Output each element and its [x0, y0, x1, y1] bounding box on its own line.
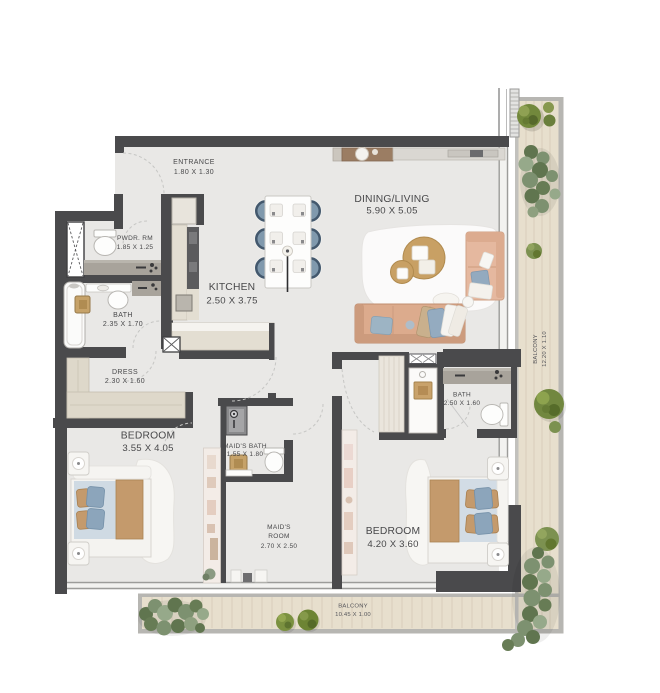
svg-text:BALCONY: BALCONY — [338, 604, 368, 610]
svg-text:2.30 X 1.60: 2.30 X 1.60 — [105, 378, 145, 385]
svg-text:4.20 X 3.60: 4.20 X 3.60 — [367, 539, 418, 550]
svg-text:DRESS: DRESS — [112, 369, 138, 376]
svg-text:2.50 X 1.60: 2.50 X 1.60 — [444, 400, 481, 407]
svg-text:DINING/LIVING: DINING/LIVING — [354, 194, 429, 205]
svg-text:MAID'S: MAID'S — [267, 524, 291, 531]
svg-text:3.55 X 4.05: 3.55 X 4.05 — [122, 443, 173, 454]
svg-text:2.70 X 2.50: 2.70 X 2.50 — [261, 543, 298, 550]
svg-text:BEDROOM: BEDROOM — [366, 526, 421, 537]
svg-text:2.35 X 1.70: 2.35 X 1.70 — [103, 321, 143, 328]
svg-text:1.55 X 1.80: 1.55 X 1.80 — [227, 451, 264, 458]
svg-text:1.85 X 1.25: 1.85 X 1.25 — [117, 244, 154, 251]
svg-text:PWDR. RM: PWDR. RM — [117, 235, 153, 242]
svg-text:5.90 X 5.05: 5.90 X 5.05 — [366, 206, 417, 217]
svg-text:1.80 X 1.30: 1.80 X 1.30 — [174, 169, 214, 176]
svg-text:MAID'S BATH: MAID'S BATH — [223, 443, 267, 450]
svg-text:2.50 X 3.75: 2.50 X 3.75 — [206, 296, 257, 307]
svg-text:ROOM: ROOM — [268, 533, 289, 540]
svg-text:BEDROOM: BEDROOM — [121, 431, 176, 442]
svg-text:BATH: BATH — [453, 392, 471, 399]
svg-text:ENTRANCE: ENTRANCE — [173, 159, 215, 166]
svg-text:BATH: BATH — [113, 312, 133, 319]
svg-text:10.45 X 1.00: 10.45 X 1.00 — [335, 612, 371, 618]
svg-text:BALCONY: BALCONY — [533, 334, 539, 364]
svg-text:12.20 X 1.10: 12.20 X 1.10 — [542, 331, 548, 367]
svg-text:KITCHEN: KITCHEN — [209, 282, 256, 293]
